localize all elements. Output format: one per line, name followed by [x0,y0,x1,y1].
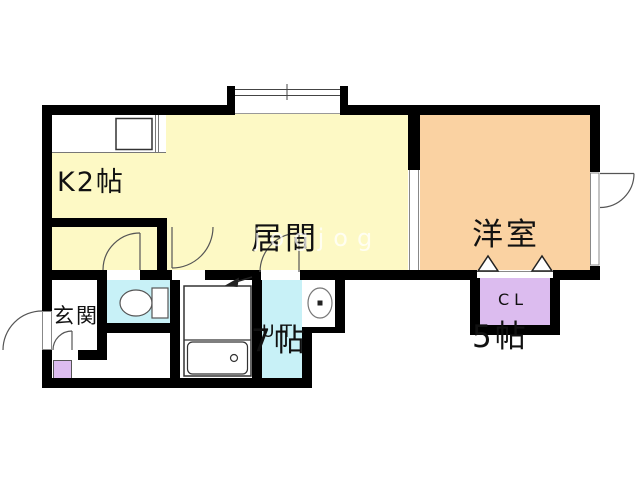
door-entrance-step [53,331,72,350]
wall-right-upper [590,105,600,172]
kitchen-counter [52,115,166,153]
bath-drain [231,355,238,362]
wall-bath-left [170,278,180,378]
western-room-label: 洋室 5帖 [472,150,540,422]
floor-plan: K2帖 居間 7帖 洋室 5帖 玄関 UT CL jogjog [0,0,640,480]
western-room-label-line1: 洋室 [472,218,540,252]
opening-entrance-hall [107,270,140,280]
opening-bathroom [172,270,205,280]
watermark: jogjog [254,226,381,251]
kitchen-label: K2帖 [57,169,125,197]
wall-top-left [42,105,227,115]
wall-kitchen-stub [157,218,167,272]
wall-mid-d [300,270,477,280]
entrance-label: 玄関 [53,305,99,327]
wall-living-western-divider [408,115,420,170]
opening-entry-door [42,311,52,350]
unit-bath [184,286,251,376]
bay-window-bay [235,88,340,114]
opening-western-door [590,172,600,266]
wall-alcove-right [335,270,345,333]
wall-bay-stub-left [227,86,235,115]
wall-toilet-bottom [97,323,180,333]
closet-label: CL [498,292,528,309]
wall-top-right [347,105,600,115]
utility-label: UT [262,324,299,342]
wall-mid-e [553,270,600,280]
wall-mid-b [140,270,172,280]
living-room-label: 居間 7帖 [251,154,319,426]
opening-living-western [408,170,420,270]
toilet-room-floor [107,278,170,323]
wall-entrance-bar [78,350,107,360]
wall-bay-stub-right [340,86,348,115]
western-room-label-line2: 5帖 [472,320,540,354]
wall-kitchen-bar [42,218,167,227]
